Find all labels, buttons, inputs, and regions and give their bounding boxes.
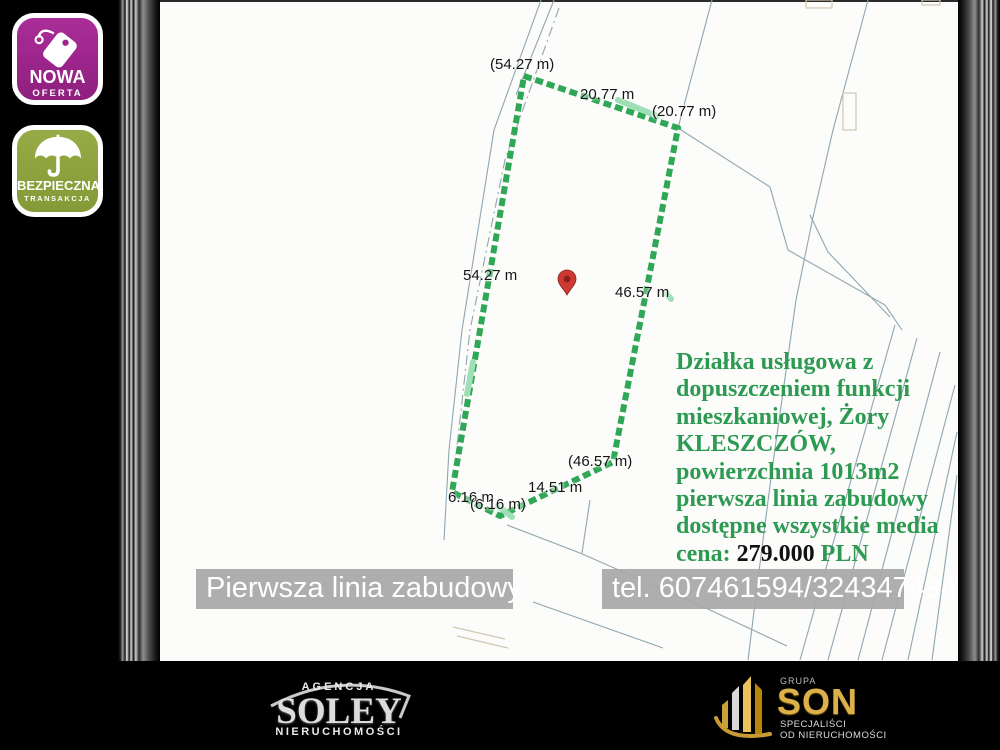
umbrella-icon bbox=[29, 134, 87, 180]
son-logo: GRUPA SON SPECJALIŚCI OD NIERUCHOMOŚCI bbox=[712, 668, 887, 748]
measurement-label: (20.77 m) bbox=[652, 103, 716, 120]
son-building-icon bbox=[712, 670, 774, 746]
measurement-label: (54.27 m) bbox=[490, 56, 554, 73]
cadastral-map: (54.27 m) 20.77 m (20.77 m) 54.27 m 46.5… bbox=[160, 0, 958, 661]
price-label: cena: bbox=[676, 541, 731, 567]
frame-right-edge bbox=[958, 0, 1000, 661]
price-tag-icon bbox=[30, 22, 86, 70]
badge-safe-title: BEZPIECZNA bbox=[17, 179, 98, 192]
caption-bar: Pierwsza linia zabudowy bbox=[196, 569, 513, 609]
badge-new-offer: NOWA OFERTA bbox=[12, 13, 103, 105]
description-line: mieszkaniowej, Żory bbox=[676, 404, 954, 431]
description-line: KLESZCZÓW, bbox=[676, 431, 954, 458]
footer: AGENCJA SOLEY NIERUCHOMOŚCI GRUPA SON SP… bbox=[0, 661, 1000, 750]
soley-bottom-label: NIERUCHOMOŚCI bbox=[263, 726, 415, 738]
frame-left-edge bbox=[118, 0, 160, 661]
son-bottom-label2: OD NIERUCHOMOŚCI bbox=[780, 730, 887, 741]
description-line: pierwsza linia zabudowy bbox=[676, 486, 954, 513]
measurement-label: (46.57 m) bbox=[568, 453, 632, 470]
son-bottom-label1: SPECJALIŚCI bbox=[780, 719, 846, 730]
price-currency: PLN bbox=[821, 541, 869, 567]
description-line: Działka usługowa z bbox=[676, 349, 954, 376]
badge-new-offer-subtitle: OFERTA bbox=[17, 88, 98, 99]
location-pin-icon bbox=[558, 270, 576, 295]
price-value: 279.000 bbox=[737, 541, 815, 567]
description-line: dostępne wszystkie media bbox=[676, 513, 954, 540]
son-name: SON bbox=[777, 681, 858, 723]
listing-poster: NOWA OFERTA BEZPIECZNA TRANSAKCJA bbox=[0, 0, 1000, 750]
badge-new-offer-title: NOWA bbox=[17, 68, 98, 86]
measurement-label: 54.27 m bbox=[463, 267, 517, 284]
soley-logo: AGENCJA SOLEY NIERUCHOMOŚCI bbox=[263, 668, 415, 746]
price-line: cena: 279.000 PLN bbox=[676, 541, 954, 568]
badge-safe-subtitle: TRANSAKCJA bbox=[17, 194, 98, 203]
description-line: dopuszczeniem funkcji bbox=[676, 376, 954, 403]
badge-safe-transaction: BEZPIECZNA TRANSAKCJA bbox=[12, 125, 103, 217]
description-line: powierzchnia 1013m2 bbox=[676, 459, 954, 486]
measurement-label: (6.16 m) bbox=[470, 496, 526, 513]
measurement-label: 46.57 m bbox=[615, 284, 669, 301]
measurement-label: 20.77 m bbox=[580, 86, 634, 103]
phone-bar: tel. 607461594/324347494 bbox=[602, 569, 904, 609]
measurement-label: 14.51 m bbox=[528, 479, 582, 496]
property-description: Działka usługowa z dopuszczeniem funkcji… bbox=[676, 349, 954, 568]
